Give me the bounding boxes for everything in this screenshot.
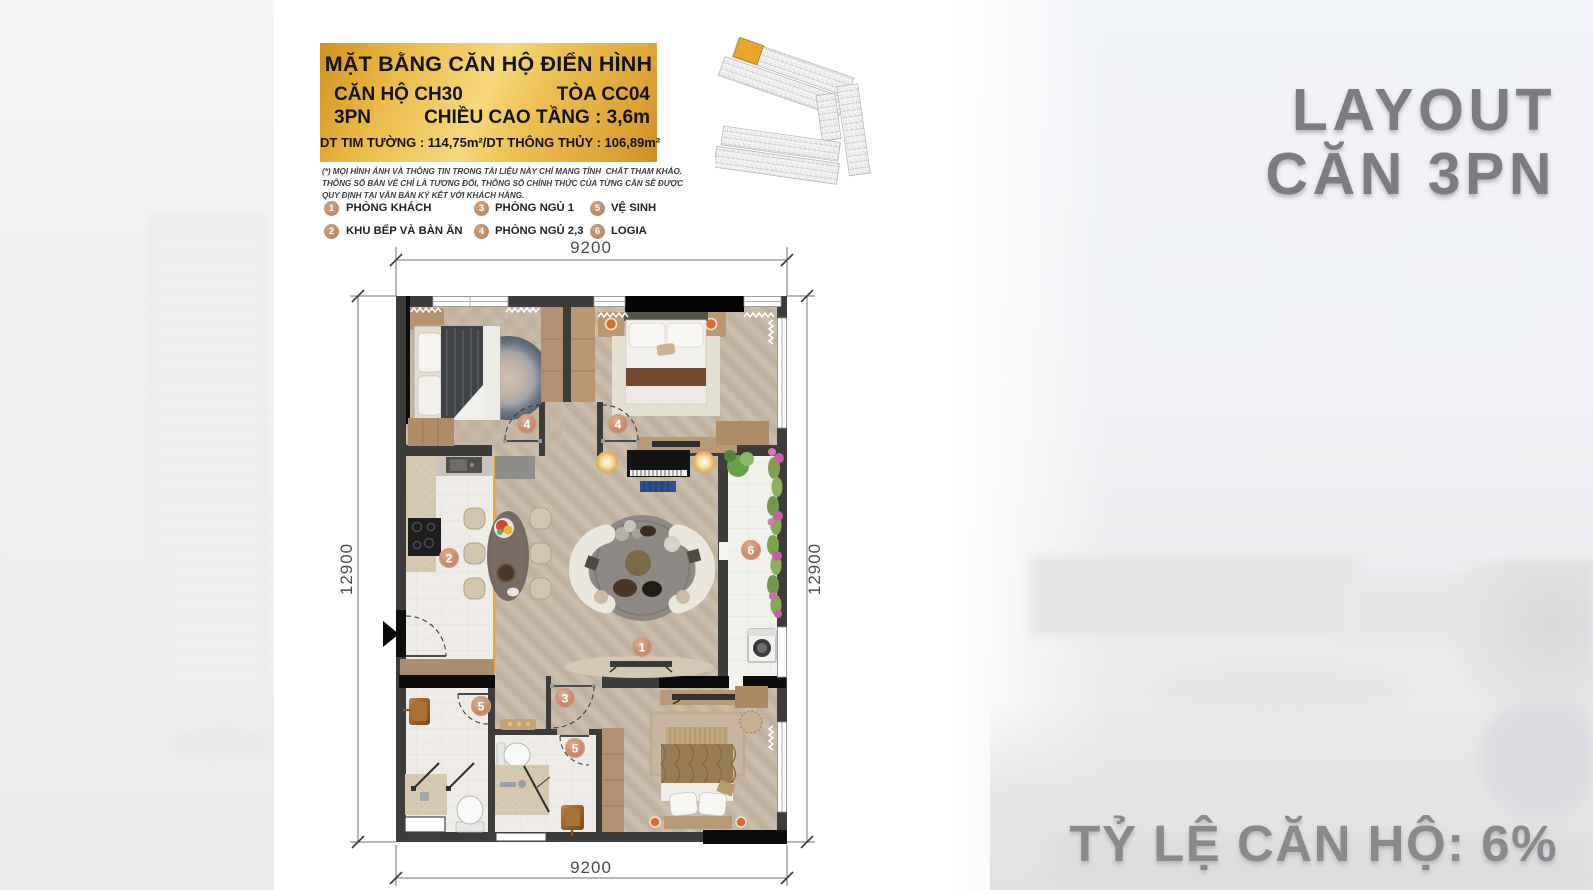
svg-text:12900: 12900	[805, 543, 824, 595]
svg-text:5: 5	[478, 700, 485, 714]
svg-text:9200: 9200	[570, 858, 612, 877]
svg-text:4: 4	[615, 418, 622, 432]
svg-text:4: 4	[524, 418, 531, 432]
svg-text:5: 5	[572, 742, 579, 756]
svg-text:3: 3	[562, 692, 569, 706]
svg-text:1: 1	[639, 641, 646, 655]
svg-text:12900: 12900	[337, 543, 356, 595]
svg-text:2: 2	[446, 552, 453, 566]
svg-text:6: 6	[748, 544, 755, 558]
svg-text:9200: 9200	[570, 240, 612, 257]
